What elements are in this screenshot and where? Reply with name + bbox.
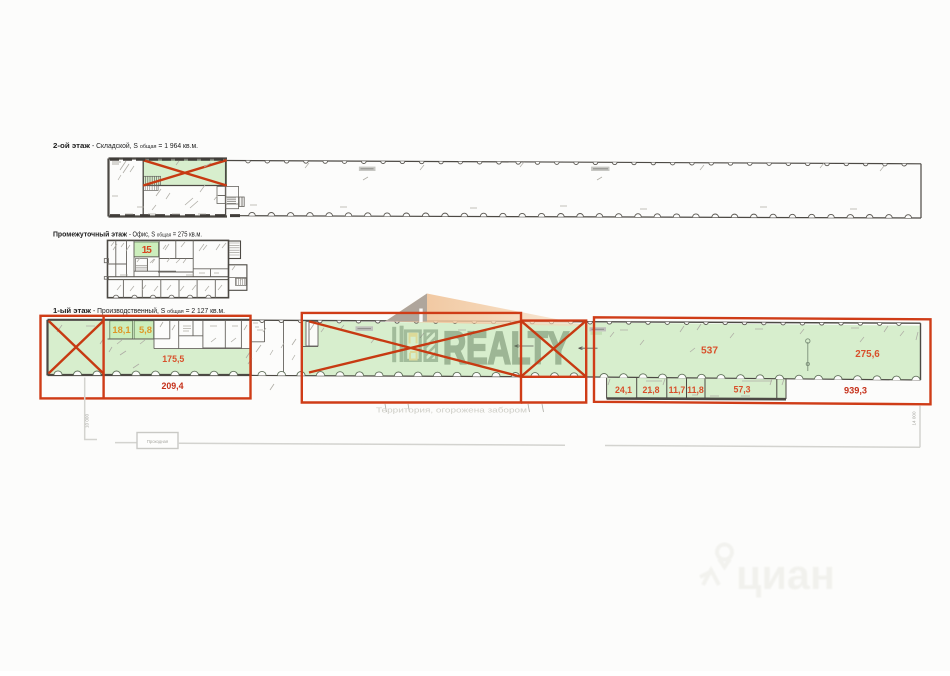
svg-text:24,1: 24,1: [615, 385, 632, 395]
svg-text:18,1: 18,1: [112, 324, 130, 335]
svg-text:1-ый этаж: 1-ый этаж: [53, 306, 92, 315]
svg-text:14 000: 14 000: [912, 411, 917, 425]
svg-text:939,3: 939,3: [844, 386, 867, 396]
svg-text:2-ой этаж: 2-ой этаж: [53, 141, 91, 150]
svg-text:11,7: 11,7: [669, 385, 686, 395]
svg-text:57,3: 57,3: [733, 384, 750, 394]
svg-text:5,8: 5,8: [139, 324, 152, 335]
svg-text:175,5: 175,5: [162, 354, 184, 364]
svg-text:537: 537: [701, 346, 718, 357]
svg-text:Проходная: Проходная: [147, 439, 168, 444]
svg-text:- Производственный, S общая =: - Производственный, S общая = 2 127 кв.м…: [93, 306, 225, 315]
svg-text:11,8: 11,8: [687, 385, 704, 395]
svg-text:Территория, огорожена забором: Территория, огорожена забором: [376, 407, 527, 415]
svg-text:21,8: 21,8: [642, 385, 659, 395]
svg-text:циан: циан: [736, 551, 835, 598]
svg-text:REALTY: REALTY: [443, 323, 569, 374]
svg-text:209,4: 209,4: [161, 381, 183, 391]
svg-text:Промежуточный этаж: Промежуточный этаж: [53, 230, 128, 239]
svg-text:10 000: 10 000: [85, 414, 90, 428]
svg-text:15: 15: [142, 245, 152, 256]
svg-text:275,6: 275,6: [855, 349, 880, 360]
